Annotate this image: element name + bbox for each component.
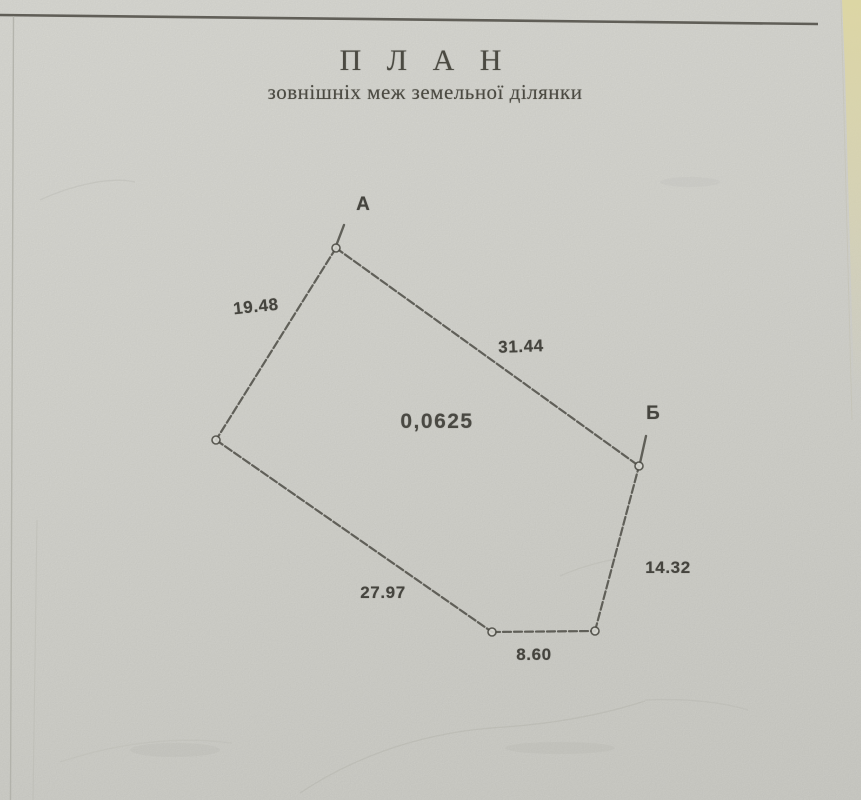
vertex-marker: [488, 628, 496, 636]
vertex-name-label: А: [356, 194, 370, 216]
edge-length-label: 31.44: [498, 336, 544, 358]
vertex-marker: [212, 436, 220, 444]
edge-length-label: 27.97: [360, 583, 406, 603]
boundary-edge: [492, 631, 595, 632]
plan-subtitle: зовнішніх меж земельної ділянки: [0, 78, 850, 106]
vertex-marker: [332, 244, 340, 252]
paper-grain-texture: [0, 0, 861, 800]
vertex-marker: [591, 627, 599, 635]
land-plot-plan-drawing: [0, 0, 861, 800]
scanned-page: П Л А Н зовнішніх меж земельної ділянки …: [0, 0, 861, 800]
edge-length-label: 8.60: [516, 645, 552, 665]
edge-length-label: 14.32: [645, 558, 691, 578]
vertex-marker: [635, 462, 643, 470]
plan-title: П Л А Н: [0, 44, 850, 78]
area-value-label: 0,0625: [400, 410, 473, 434]
vertex-name-label: Б: [646, 403, 660, 425]
plan-header: П Л А Н зовнішніх меж земельної ділянки: [0, 44, 850, 106]
